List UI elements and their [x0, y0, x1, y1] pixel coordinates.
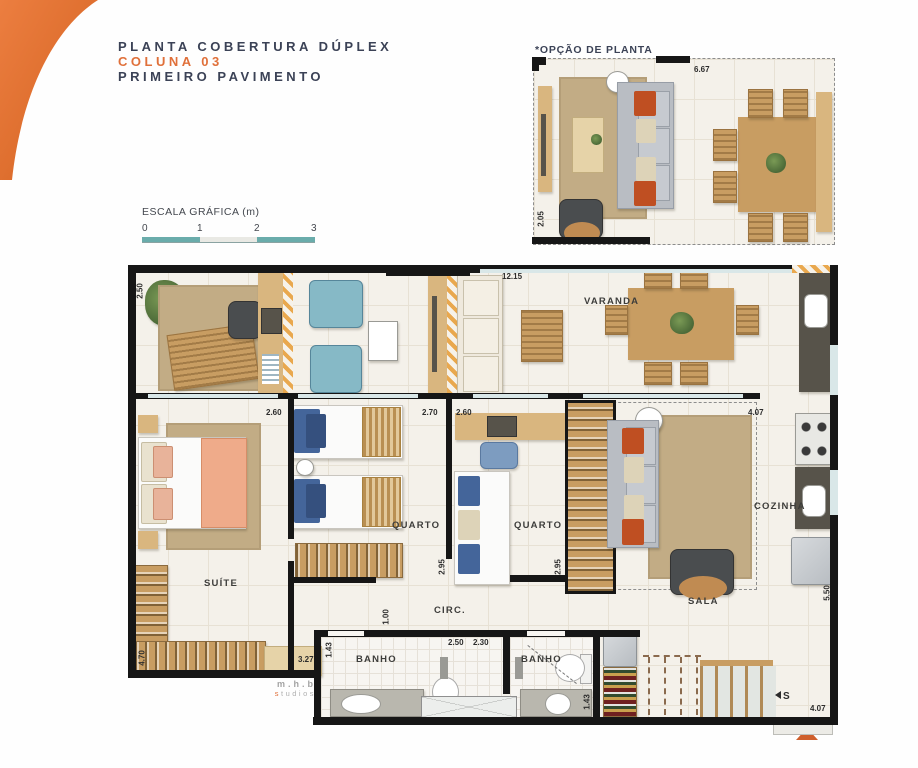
studio-credit: m.h.b studios	[232, 679, 316, 698]
pillow	[153, 488, 173, 520]
desk-chair	[480, 442, 518, 469]
inset-centerpiece	[766, 153, 786, 173]
stairs-letter: S	[783, 691, 790, 702]
wall-banho-right	[593, 630, 600, 725]
inset-option-plan: 6.67 2.05	[533, 58, 835, 245]
cream-sofa	[457, 275, 503, 395]
inset-sideboard	[816, 92, 832, 232]
pillow-blue	[458, 544, 480, 574]
inset-sofa	[617, 82, 674, 209]
quarto1-window	[298, 394, 418, 398]
pillow-orange	[622, 428, 644, 454]
stair-tread	[760, 666, 776, 717]
page-subtitle-coluna: COLUNA 03	[118, 54, 392, 69]
main-floorplan: S VARANDA SUÍTE QUARTO QUARTO SALA COZIN…	[128, 265, 838, 725]
kitchen-sink	[804, 294, 828, 328]
dining-chair	[736, 305, 759, 335]
graphic-scale: ESCALA GRÁFICA (m) 0 1 2 3	[142, 206, 332, 251]
dining-chair	[713, 171, 737, 203]
pillow-blue	[306, 484, 326, 518]
stairs-label: S	[775, 686, 790, 704]
pillow-orange	[634, 181, 656, 206]
wine-rack	[603, 667, 637, 717]
divider-hatch	[447, 272, 457, 393]
dining-chair	[783, 89, 808, 118]
room-label-suite: SUÍTE	[204, 578, 238, 589]
wall-suite-quarto1	[288, 399, 294, 539]
varanda-rail-glass	[480, 269, 830, 273]
room-label-banho2: BANHO	[521, 654, 562, 665]
room-label-quarto2: QUARTO	[514, 520, 562, 531]
banho2-door	[527, 631, 565, 636]
suite-window	[148, 394, 278, 398]
room-label-circ: CIRC.	[434, 605, 466, 616]
suite-blanket	[201, 438, 247, 528]
dim-varanda-width: 12.15	[502, 272, 522, 281]
dining-chair	[748, 213, 773, 242]
metal-tray	[603, 633, 637, 667]
room-label-banho1: BANHO	[356, 654, 397, 665]
kitchen-window	[830, 470, 838, 515]
shower-icon	[440, 657, 448, 679]
dim-sala-width: 4.07	[748, 408, 764, 417]
game-table	[368, 321, 398, 361]
credit-name: m.h.b	[232, 679, 316, 689]
room-label-cozinha: COZINHA	[754, 501, 806, 512]
dining-chair	[680, 362, 708, 385]
wall-bottom	[313, 717, 838, 725]
scale-label: ESCALA GRÁFICA (m)	[142, 206, 332, 218]
inset-dim-depth: 2.05	[537, 211, 546, 227]
sala-door-glass	[583, 394, 743, 398]
books	[262, 354, 279, 384]
dining-chair	[713, 129, 737, 161]
inset-bottom-wall	[532, 237, 650, 244]
inset-dining-table	[738, 117, 818, 212]
quarto1-bed	[291, 475, 403, 529]
nightstand	[138, 415, 158, 433]
computer	[261, 308, 282, 334]
scale-tick: 3	[311, 223, 317, 234]
inset-rug-tray	[572, 117, 604, 173]
dim-banho1-depth: 1.43	[325, 642, 334, 658]
laptop	[487, 416, 517, 437]
quarto2-window	[473, 394, 548, 398]
pillow-orange	[622, 519, 644, 545]
suite-bed	[138, 437, 246, 529]
stairs-dashed	[648, 657, 650, 715]
stairs-dashed	[696, 657, 698, 715]
stairs-direction-icon	[775, 691, 781, 699]
bedside-lamp	[296, 459, 314, 476]
quarto1-bed	[291, 405, 403, 459]
varanda-dining-table	[628, 288, 734, 360]
stair-tread	[745, 666, 760, 717]
inset-tv	[541, 114, 546, 176]
stair-tread	[730, 666, 745, 717]
dim-quarto1-width: 2.70	[422, 408, 438, 417]
coffee-table	[521, 310, 563, 362]
dim-suite-depth: 4.70	[138, 650, 147, 666]
scale-tick: 1	[197, 223, 203, 234]
stairs-dashed-top	[643, 655, 701, 657]
scale-segment	[200, 237, 257, 243]
divider-hatch	[283, 272, 293, 393]
wall-banho-divider	[503, 636, 510, 694]
wall-top-thick	[386, 265, 470, 276]
credit-sub: studios	[232, 689, 316, 698]
stove	[795, 413, 833, 465]
sofa-cushion	[463, 280, 499, 316]
terrace-desk	[258, 272, 283, 393]
dim-circ-width: 1.00	[382, 609, 391, 625]
scale-segment	[257, 237, 315, 243]
kitchen-window	[830, 345, 838, 395]
dim-banho1-width: 2.50	[448, 638, 464, 647]
stairs-dashed	[680, 657, 682, 715]
room-label-varanda: VARANDA	[584, 296, 639, 307]
tv	[432, 296, 437, 372]
wall-left	[128, 265, 136, 678]
inset-title: *OPÇÃO DE PLANTA	[535, 44, 653, 56]
pillow-cream	[458, 510, 480, 540]
wall-quarto2-circ	[510, 575, 565, 582]
pillow	[153, 446, 173, 478]
dim-quarto2-width: 2.60	[456, 408, 472, 417]
inset-dim-width: 6.67	[694, 65, 710, 74]
dining-chair	[783, 213, 808, 242]
room-label-quarto1: QUARTO	[392, 520, 440, 531]
sofa-cushion	[463, 356, 499, 392]
scale-tick: 0	[142, 223, 148, 234]
inset-armchair	[559, 199, 603, 239]
scale-segment	[142, 237, 200, 243]
pillow-cream	[636, 119, 656, 143]
corner-hatch	[792, 265, 830, 273]
orange-corner-wedge	[0, 0, 110, 180]
blue-armchair	[310, 345, 362, 393]
page-subtitle-pavimento: PRIMEIRO PAVIMENTO	[118, 69, 392, 84]
stairs-dashed	[664, 657, 666, 715]
dim-kitchen-width: 4.07	[810, 704, 826, 713]
pillow-blue	[458, 476, 480, 506]
sala-sofa	[607, 420, 659, 548]
page-title: PLANTA COBERTURA DÚPLEX	[118, 39, 392, 54]
shower-tray	[421, 696, 517, 718]
room-label-sala: SALA	[688, 596, 719, 607]
inset-tv-console	[538, 86, 552, 192]
dim-banho2-width: 2.30	[473, 638, 489, 647]
stair-tread	[715, 666, 730, 717]
inset-plant	[591, 134, 602, 145]
banho2-sink-counter	[520, 689, 592, 717]
scale-tick: 2	[254, 223, 260, 234]
inset-corner-wall	[532, 57, 539, 71]
pillow-cream	[636, 157, 656, 181]
inset-dim-bar	[656, 56, 690, 63]
pillow-blue	[306, 414, 326, 448]
dining-chair	[644, 362, 672, 385]
tv-panel	[428, 272, 447, 393]
dim-sala-depth: 5.50	[823, 585, 832, 601]
blue-armchair	[309, 280, 363, 328]
pillow-cream	[624, 495, 644, 521]
banho1-sink-counter	[330, 689, 424, 717]
pillow-orange	[634, 91, 656, 116]
dim-suite-width: 2.60	[266, 408, 282, 417]
banho1-door	[328, 631, 364, 636]
blanket	[362, 407, 401, 457]
dining-chair	[748, 89, 773, 118]
dim-quarto2-depth: 2.95	[554, 559, 563, 575]
office-chair	[228, 301, 262, 339]
header-block: PLANTA COBERTURA DÚPLEX COLUNA 03 PRIMEI…	[118, 39, 392, 84]
nightstand	[138, 531, 158, 549]
stair-tread	[700, 666, 715, 717]
banho2-sink	[545, 693, 571, 715]
quarto1-wardrobe	[295, 543, 403, 578]
dim-varanda-depth: 2.50	[136, 283, 145, 299]
wall-banho-left	[314, 630, 321, 725]
dining-chair	[605, 305, 628, 335]
wall-quarto1-circ	[288, 577, 376, 583]
dim-banho2-depth: 1.43	[583, 694, 592, 710]
wall-quarto1-quarto2	[446, 399, 452, 559]
table-centerpiece	[670, 312, 694, 334]
kitchen-counter-top	[799, 270, 831, 392]
banho2-toilet	[565, 650, 591, 688]
floorplan-page: PLANTA COBERTURA DÚPLEX COLUNA 03 PRIMEI…	[0, 0, 918, 768]
sala-armchair	[670, 549, 734, 595]
dim-quarto1-depth: 2.95	[438, 559, 447, 575]
banho1-sink	[341, 694, 381, 714]
sofa-cushion	[463, 318, 499, 354]
quarto2-desk	[455, 413, 565, 440]
pillow-cream	[624, 457, 644, 483]
kitchen-counter	[795, 467, 831, 529]
quarto2-bed	[454, 471, 510, 585]
dim-suite-shelf: 3.27	[298, 655, 314, 664]
